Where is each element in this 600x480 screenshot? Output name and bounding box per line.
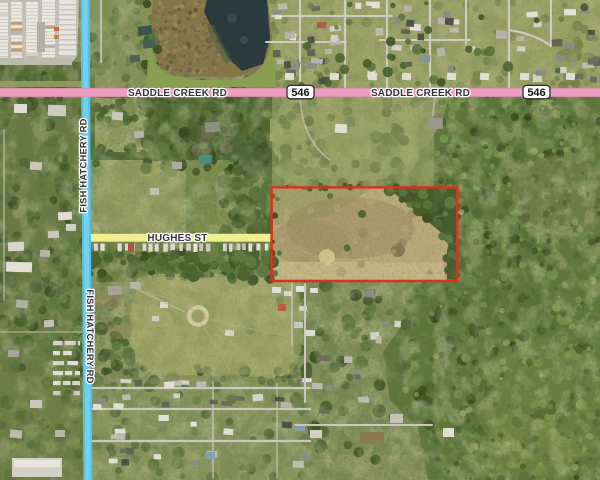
svg-text:SADDLE CREEK RD: SADDLE CREEK RD bbox=[371, 88, 470, 99]
svg-text:SADDLE CREEK RD: SADDLE CREEK RD bbox=[128, 88, 227, 99]
svg-text:546: 546 bbox=[291, 87, 309, 99]
svg-text:HUGHES ST: HUGHES ST bbox=[147, 233, 207, 244]
svg-text:546: 546 bbox=[527, 87, 545, 99]
svg-text:FISH HATCHERY RD: FISH HATCHERY RD bbox=[85, 289, 96, 383]
svg-text:FISH HATCHERY RD: FISH HATCHERY RD bbox=[78, 118, 89, 212]
